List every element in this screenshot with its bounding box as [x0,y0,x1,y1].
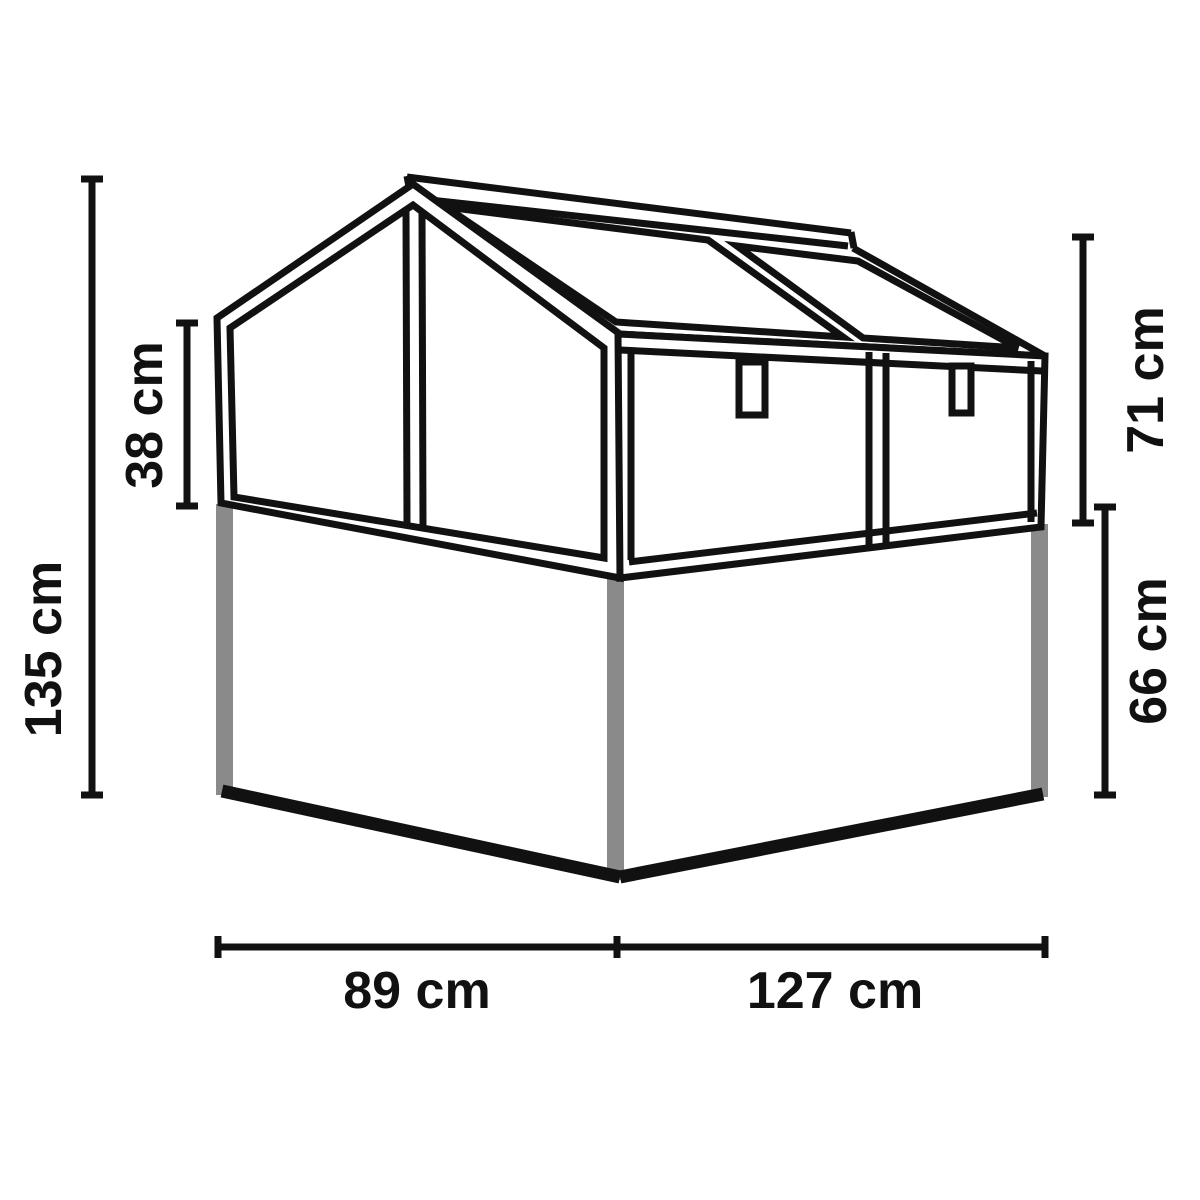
window-handle-left [739,362,765,415]
dimension-diagram: 135 cm 38 cm 71 cm 66 cm [0,0,1200,1200]
ground-edge-left [222,791,620,877]
dim-label-135: 135 cm [15,561,73,737]
window-handle-right [952,366,971,413]
dim-label-127: 127 cm [747,962,923,1020]
dim-label-71: 71 cm [1117,306,1175,453]
gable-mullion-left-edge [406,210,407,524]
dimension-gable-glass-height: 38 cm [116,323,198,506]
dimension-top-section: 71 cm [1072,237,1175,523]
dim-label-38: 38 cm [116,341,174,488]
dim-label-66: 66 cm [1120,577,1178,724]
post-front-corner [607,575,624,880]
ground-edge-right [620,794,1043,877]
dimension-total-height: 135 cm [15,179,103,795]
raised-bed-ground-edges [222,791,1043,877]
post-left-rear [216,504,233,795]
dimension-base-height: 66 cm [1094,507,1178,795]
dimension-footprint: 89 cm 127 cm [218,936,1045,1020]
ridge-cap-right-end [851,232,854,248]
greenhouse-drawing: 135 cm 38 cm 71 cm 66 cm [0,0,1200,1200]
dim-label-89: 89 cm [343,962,490,1020]
gable-mullion-right-edge [422,212,423,527]
side-wall [618,334,1045,578]
post-right-rear [1031,524,1048,797]
